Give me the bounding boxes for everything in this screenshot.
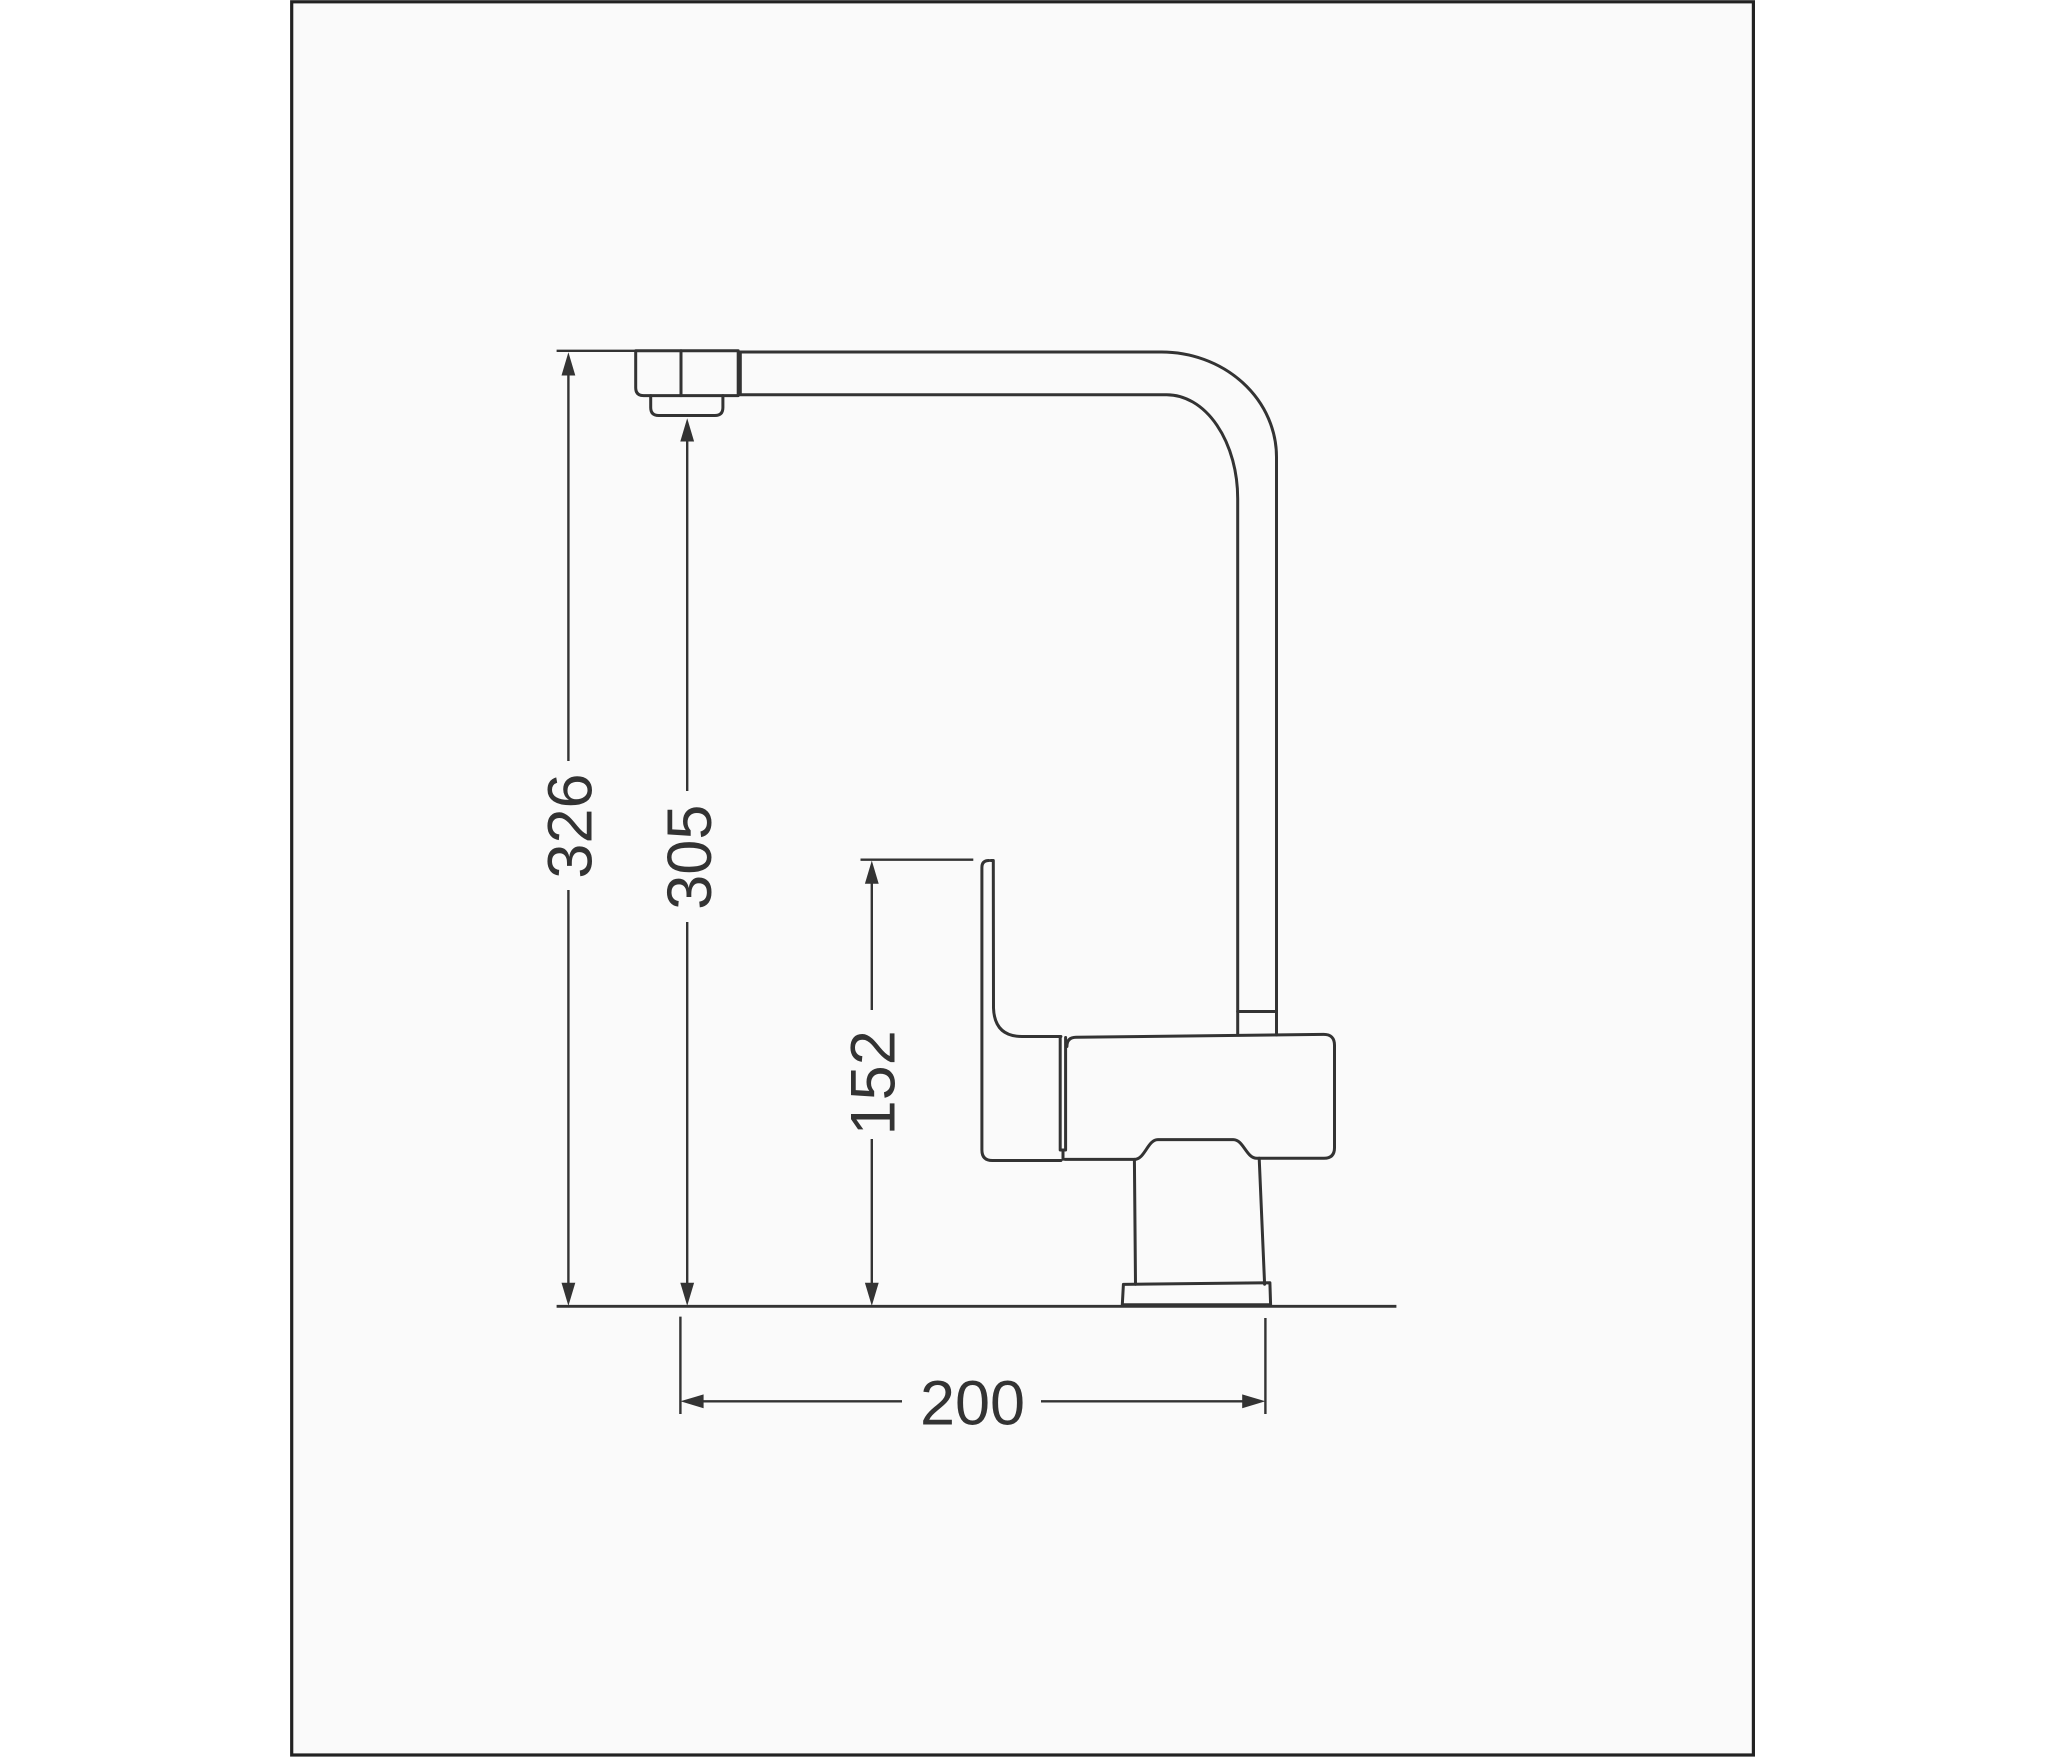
svg-text:152: 152: [839, 1030, 909, 1135]
svg-text:326: 326: [536, 773, 606, 878]
svg-text:305: 305: [655, 805, 725, 910]
svg-text:200: 200: [920, 1369, 1025, 1439]
